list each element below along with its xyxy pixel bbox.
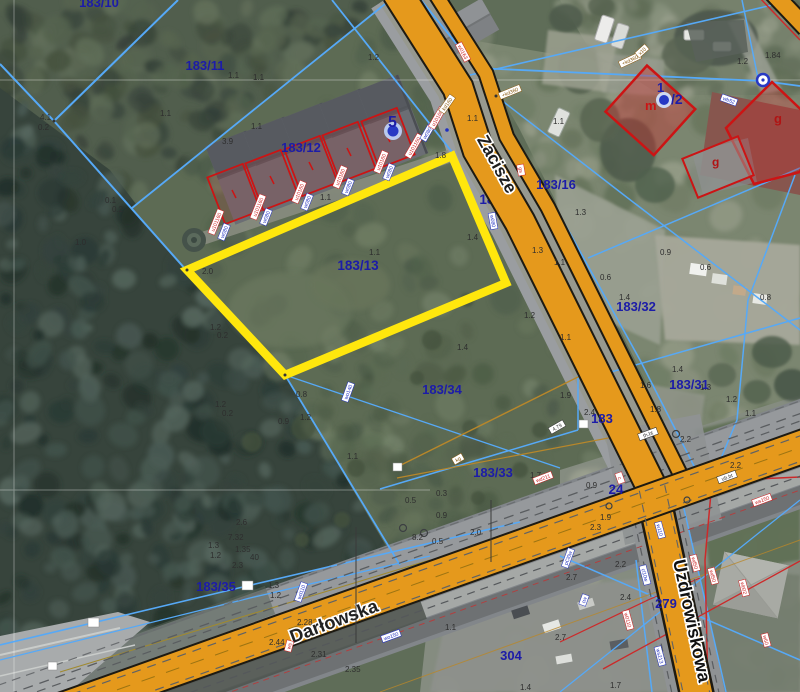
- svg-text:1.7: 1.7: [610, 681, 622, 690]
- svg-text:279: 279: [655, 596, 677, 611]
- svg-text:0.1: 0.1: [105, 196, 117, 205]
- svg-text:2.6: 2.6: [236, 518, 248, 527]
- svg-text:1: 1: [657, 80, 664, 95]
- svg-text:1.0: 1.0: [75, 238, 87, 247]
- svg-text:1.1: 1.1: [251, 122, 263, 131]
- svg-text:2.3: 2.3: [232, 561, 244, 570]
- svg-text:0.3: 0.3: [436, 489, 448, 498]
- svg-text:2.28: 2.28: [297, 618, 313, 627]
- svg-text:2.4: 2.4: [620, 593, 632, 602]
- svg-text:304: 304: [500, 648, 522, 663]
- svg-text:1.2: 1.2: [368, 53, 380, 62]
- svg-text:1.84: 1.84: [765, 51, 781, 60]
- svg-text:3.9: 3.9: [222, 137, 234, 146]
- svg-text:183/16: 183/16: [536, 177, 576, 192]
- svg-text:1.9: 1.9: [600, 513, 612, 522]
- svg-text:1.1: 1.1: [369, 248, 381, 257]
- svg-text:1.3: 1.3: [208, 541, 220, 550]
- svg-text:1.3: 1.3: [700, 383, 712, 392]
- svg-text:2.7: 2.7: [566, 573, 578, 582]
- svg-text:1.8: 1.8: [650, 405, 662, 414]
- svg-text:1.4: 1.4: [619, 293, 631, 302]
- svg-text:0.2: 0.2: [222, 409, 234, 418]
- svg-text:5: 5: [388, 114, 397, 131]
- svg-text:0.8: 0.8: [296, 390, 308, 399]
- svg-text:183/10: 183/10: [79, 0, 119, 10]
- svg-text:0.9: 0.9: [586, 481, 598, 490]
- svg-text:2.31: 2.31: [311, 650, 327, 659]
- svg-text:1.9: 1.9: [560, 391, 572, 400]
- svg-text:183/34: 183/34: [422, 382, 463, 397]
- svg-text:2.2: 2.2: [730, 461, 742, 470]
- svg-text:1.1: 1.1: [228, 71, 240, 80]
- svg-text:1.2: 1.2: [737, 57, 749, 66]
- svg-text:0.2: 0.2: [38, 123, 50, 132]
- svg-text:1.1: 1.1: [467, 114, 479, 123]
- svg-text:1.1: 1.1: [745, 409, 757, 418]
- svg-text:2.0: 2.0: [202, 267, 214, 276]
- svg-text:1.1: 1.1: [320, 193, 332, 202]
- svg-text:1.8: 1.8: [435, 151, 447, 160]
- svg-text:183/35: 183/35: [196, 579, 236, 594]
- svg-text:1.2: 1.2: [524, 311, 536, 320]
- svg-text:2.7: 2.7: [555, 633, 567, 642]
- svg-text:183/11: 183/11: [185, 58, 224, 73]
- svg-text:0.8: 0.8: [760, 293, 772, 302]
- svg-text:1.1: 1.1: [347, 452, 359, 461]
- svg-text:1.6: 1.6: [640, 381, 652, 390]
- svg-text:0.2: 0.2: [217, 331, 229, 340]
- svg-text:183/13: 183/13: [337, 258, 379, 273]
- svg-text:24: 24: [608, 482, 624, 497]
- svg-text:0.5: 0.5: [432, 537, 444, 546]
- svg-text:g: g: [774, 111, 782, 126]
- svg-text:/2: /2: [671, 91, 683, 107]
- svg-text:2.0: 2.0: [470, 528, 482, 537]
- svg-text:1.3: 1.3: [532, 246, 544, 255]
- svg-text:0.2: 0.2: [112, 205, 124, 214]
- svg-text:1.3: 1.3: [268, 581, 280, 590]
- svg-text:1.2: 1.2: [300, 413, 312, 422]
- svg-text:1.3: 1.3: [575, 208, 587, 217]
- svg-text:7.32: 7.32: [228, 533, 244, 542]
- svg-text:0.9: 0.9: [660, 248, 672, 257]
- svg-text:1.35: 1.35: [235, 545, 251, 554]
- svg-text:g: g: [712, 155, 719, 169]
- svg-text:1.4: 1.4: [520, 683, 532, 692]
- svg-text:2.35: 2.35: [345, 665, 361, 674]
- svg-text:1.1: 1.1: [554, 258, 566, 267]
- svg-text:1.1: 1.1: [253, 73, 265, 82]
- svg-text:1.4: 1.4: [457, 343, 469, 352]
- svg-text:1.2: 1.2: [215, 400, 227, 409]
- svg-text:1.1: 1.1: [160, 109, 172, 118]
- svg-text:0.6: 0.6: [700, 263, 712, 272]
- svg-text:0.5: 0.5: [405, 496, 417, 505]
- svg-text:2.3: 2.3: [590, 523, 602, 532]
- svg-text:0.9: 0.9: [278, 417, 290, 426]
- svg-text:1.1: 1.1: [553, 117, 565, 126]
- svg-text:2.4: 2.4: [584, 408, 596, 417]
- svg-text:1.4: 1.4: [467, 233, 479, 242]
- svg-text:1.1: 1.1: [445, 623, 457, 632]
- svg-text:40: 40: [250, 553, 259, 562]
- svg-text:183/12: 183/12: [281, 140, 321, 155]
- svg-text:1.2: 1.2: [726, 395, 738, 404]
- svg-text:8.2: 8.2: [412, 533, 424, 542]
- svg-text:m: m: [645, 98, 657, 113]
- svg-text:0.9: 0.9: [436, 511, 448, 520]
- svg-text:2.2: 2.2: [680, 435, 692, 444]
- svg-text:4.1: 4.1: [40, 113, 52, 122]
- svg-text:2.2: 2.2: [615, 560, 627, 569]
- svg-text:2.44: 2.44: [269, 638, 285, 647]
- svg-text:0.6: 0.6: [600, 273, 612, 282]
- svg-text:1.1: 1.1: [560, 333, 572, 342]
- svg-text:1.4: 1.4: [672, 365, 684, 374]
- svg-text:1.2: 1.2: [210, 551, 222, 560]
- svg-text:183/33: 183/33: [473, 465, 513, 480]
- svg-text:1.2: 1.2: [270, 591, 282, 600]
